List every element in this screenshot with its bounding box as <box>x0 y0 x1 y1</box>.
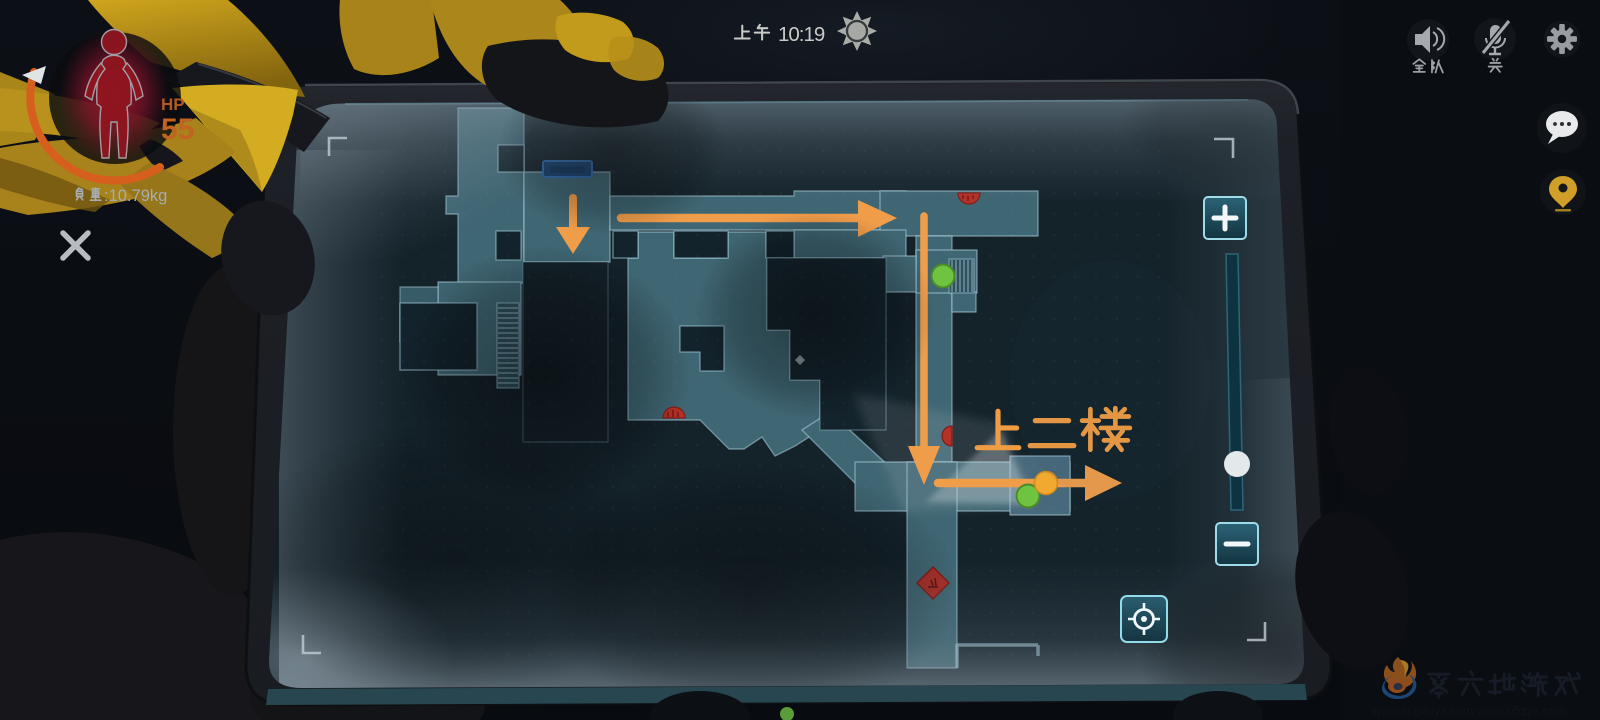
svg-text:HP: HP <box>161 95 185 114</box>
svg-text:www.lingliuyx.com www.05zyx.: www.lingliuyx.com www.05zyx.com <box>1371 704 1567 718</box>
svg-text:10:19: 10:19 <box>778 23 825 46</box>
svg-text:55: 55 <box>161 113 194 146</box>
svg-text::10.79kg: :10.79kg <box>104 187 167 205</box>
